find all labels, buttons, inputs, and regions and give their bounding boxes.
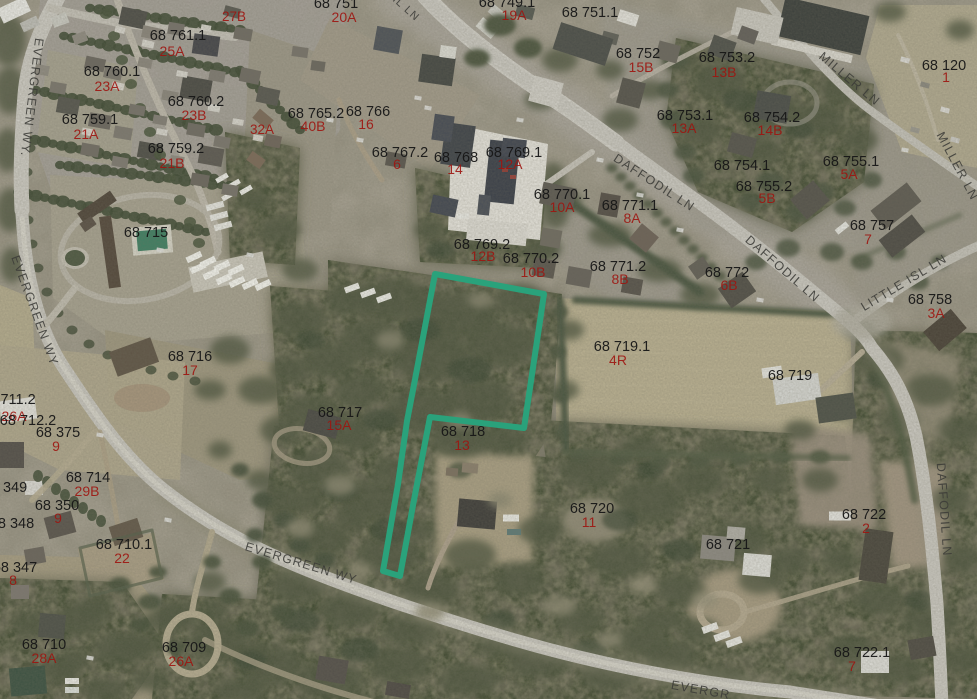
svg-text:10A: 10A	[550, 199, 576, 215]
svg-text:68 349: 68 349	[0, 480, 27, 496]
svg-text:68 348: 68 348	[0, 516, 34, 532]
svg-text:6B: 6B	[720, 277, 737, 293]
svg-text:68 347: 68 347	[0, 560, 37, 576]
svg-text:10B: 10B	[521, 264, 546, 280]
svg-text:1: 1	[942, 69, 950, 85]
svg-text:13A: 13A	[672, 120, 698, 136]
svg-text:14: 14	[447, 161, 463, 177]
svg-text:22: 22	[114, 550, 130, 566]
svg-text:28A: 28A	[32, 650, 58, 666]
svg-text:68 711.2: 68 711.2	[0, 392, 36, 408]
svg-text:13B: 13B	[712, 64, 737, 80]
svg-text:16: 16	[358, 116, 374, 132]
svg-text:20A: 20A	[332, 9, 358, 25]
svg-text:3A: 3A	[927, 305, 945, 321]
svg-text:26A: 26A	[169, 653, 195, 669]
svg-text:23B: 23B	[182, 107, 207, 123]
svg-text:25A: 25A	[160, 43, 186, 59]
svg-text:17: 17	[182, 362, 198, 378]
svg-text:15B: 15B	[629, 59, 654, 75]
svg-text:68 715: 68 715	[124, 225, 168, 241]
svg-text:23A: 23A	[95, 78, 121, 94]
svg-text:14B: 14B	[758, 122, 783, 138]
svg-text:68 719: 68 719	[768, 368, 812, 384]
svg-text:68 761.1: 68 761.1	[150, 28, 206, 44]
svg-text:19A: 19A	[502, 7, 528, 23]
svg-text:68 722.1: 68 722.1	[834, 645, 890, 661]
svg-text:27B: 27B	[222, 9, 246, 24]
svg-text:5A: 5A	[840, 166, 858, 182]
svg-text:12B: 12B	[471, 248, 496, 264]
svg-text:8: 8	[9, 572, 17, 588]
svg-text:11: 11	[582, 514, 597, 530]
svg-text:40B: 40B	[301, 118, 326, 134]
svg-text:29B: 29B	[75, 483, 100, 499]
svg-text:68 712.2: 68 712.2	[0, 413, 56, 429]
svg-text:68 751.1: 68 751.1	[562, 5, 618, 21]
svg-text:6: 6	[393, 156, 401, 172]
svg-text:8B: 8B	[611, 271, 628, 287]
svg-text:68 754.1: 68 754.1	[714, 158, 770, 174]
svg-text:21A: 21A	[74, 126, 100, 142]
svg-text:2: 2	[862, 520, 870, 536]
svg-text:7: 7	[864, 231, 872, 247]
svg-text:12A: 12A	[498, 156, 524, 172]
svg-text:68 757: 68 757	[850, 218, 894, 234]
svg-text:15A: 15A	[327, 417, 353, 433]
svg-text:9: 9	[52, 438, 60, 454]
svg-text:9: 9	[54, 510, 62, 526]
svg-text:68 721: 68 721	[706, 537, 750, 553]
svg-text:4R: 4R	[609, 352, 627, 368]
svg-text:32A: 32A	[250, 122, 274, 137]
svg-text:5B: 5B	[758, 190, 775, 206]
svg-text:13: 13	[454, 437, 470, 453]
svg-text:8A: 8A	[623, 210, 641, 226]
svg-text:7: 7	[848, 658, 856, 674]
svg-text:21B: 21B	[160, 155, 185, 171]
